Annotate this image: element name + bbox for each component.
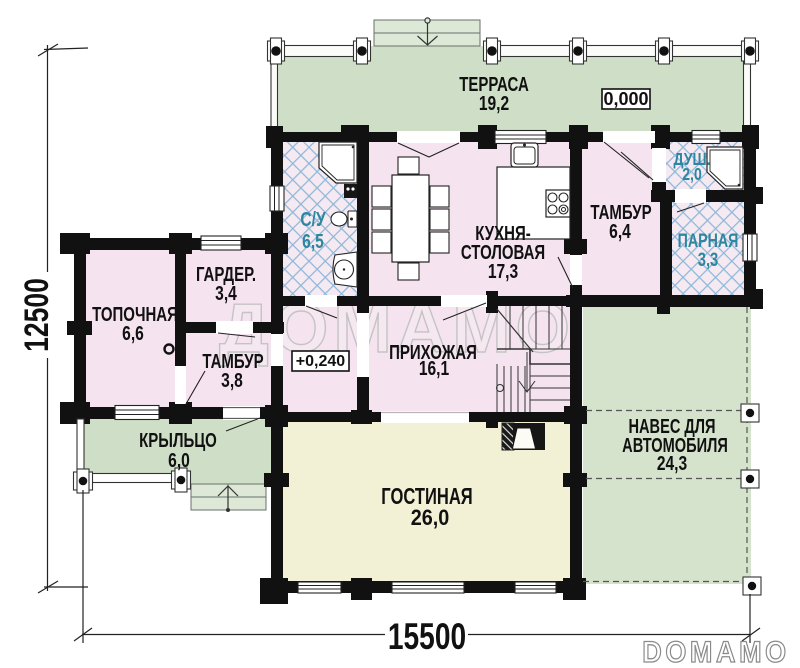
svg-text:24,3: 24,3	[657, 452, 687, 474]
svg-text:17,3: 17,3	[488, 260, 518, 282]
svg-text:6,6: 6,6	[122, 322, 144, 344]
svg-text:3,8: 3,8	[221, 369, 243, 391]
svg-text:6,0: 6,0	[168, 449, 190, 471]
svg-text:26,0: 26,0	[411, 506, 450, 530]
svg-text:12500: 12500	[18, 278, 56, 352]
svg-text:+0,240: +0,240	[296, 353, 345, 370]
svg-text:6,4: 6,4	[609, 220, 631, 242]
svg-text:6,5: 6,5	[302, 230, 324, 252]
svg-text:19,2: 19,2	[479, 92, 509, 114]
svg-text:DOMAMO: DOMAMO	[642, 636, 789, 668]
svg-text:2,0: 2,0	[682, 164, 702, 184]
svg-text:15500: 15500	[388, 615, 466, 657]
svg-text:КРЫЛЬЦО: КРЫЛЬЦО	[139, 429, 217, 452]
svg-text:3,3: 3,3	[698, 249, 719, 270]
svg-text:0,000: 0,000	[603, 89, 648, 109]
svg-text:16,1: 16,1	[419, 357, 449, 379]
svg-text:3,4: 3,4	[215, 282, 237, 304]
svg-text:С/У: С/У	[300, 208, 326, 230]
